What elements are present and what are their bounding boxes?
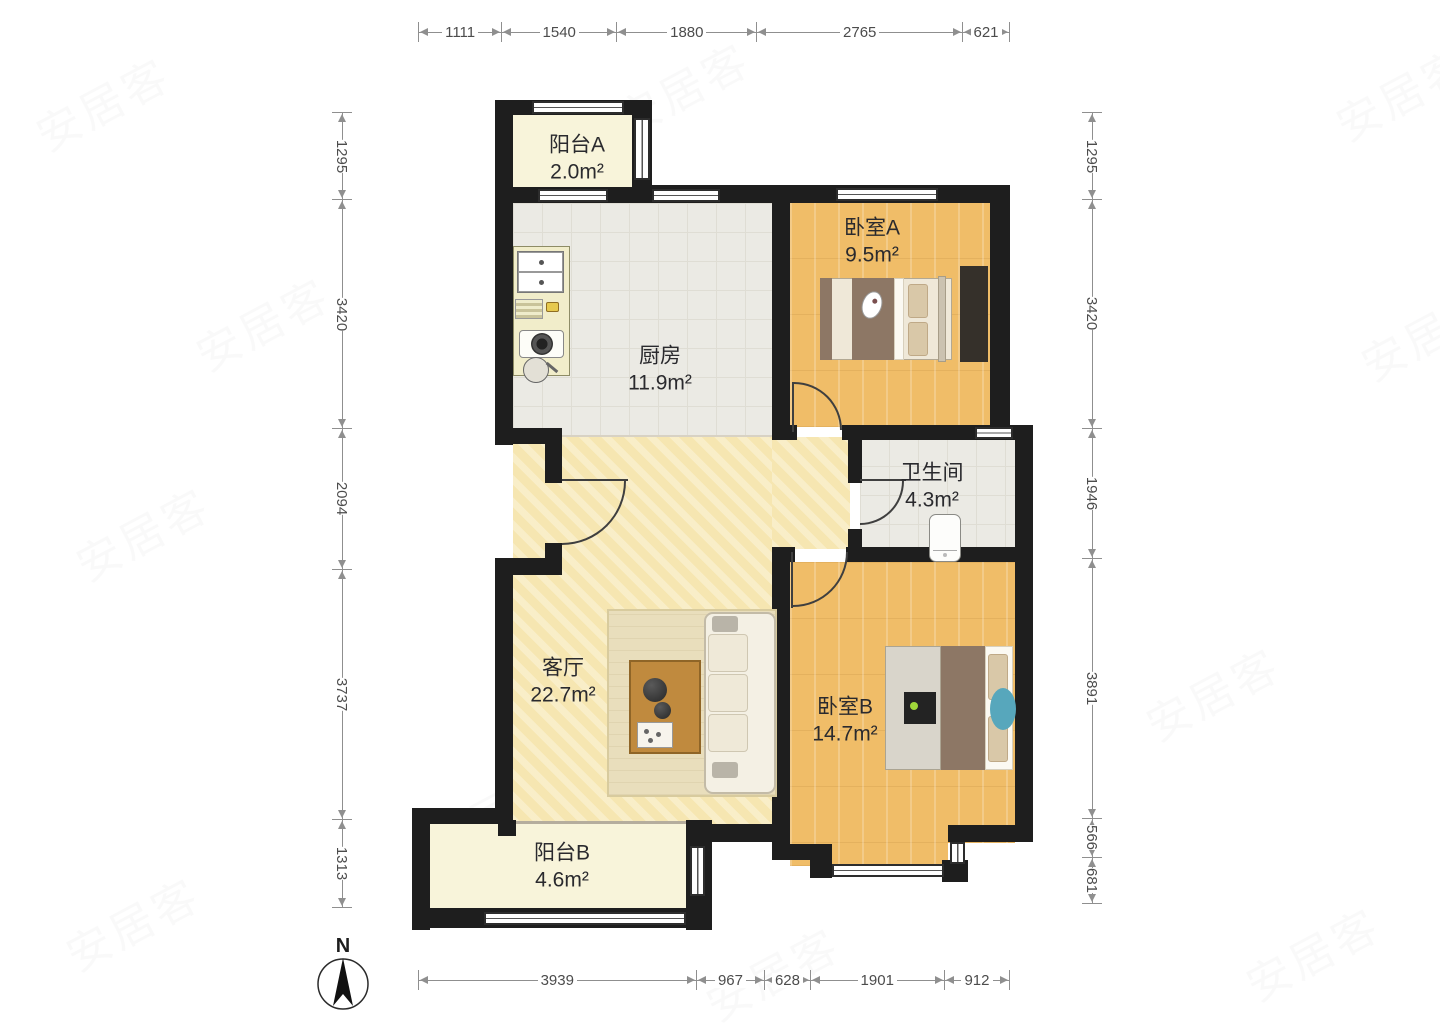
dimension-segment: 1946 bbox=[1082, 428, 1102, 558]
bed-a-pillow bbox=[908, 284, 928, 318]
watermark-text: 安居客 bbox=[53, 860, 210, 984]
dimension-segment: 681 bbox=[1082, 857, 1102, 904]
window bbox=[836, 188, 938, 201]
window bbox=[832, 864, 944, 877]
watermark-text: 安居客 bbox=[63, 470, 220, 594]
pan-icon bbox=[523, 357, 549, 383]
kitchen-living-seam bbox=[562, 435, 772, 437]
room-label-bedroom-a: 卧室A 9.5m² bbox=[844, 215, 900, 270]
room-label-living-room: 客厅 22.7m² bbox=[530, 655, 595, 710]
dimension-value: 1880 bbox=[667, 25, 706, 40]
table-decor-icon bbox=[643, 678, 667, 702]
watermark-text: 安居客 bbox=[183, 260, 340, 384]
bed-b-blanket bbox=[941, 646, 985, 770]
tv-icon bbox=[904, 692, 936, 724]
room-name: 卧室A bbox=[844, 217, 900, 240]
hallway-floor bbox=[772, 437, 850, 549]
wall-segment bbox=[848, 529, 862, 547]
room-label-balcony-b: 阳台B 4.6m² bbox=[534, 840, 590, 895]
room-label-bathroom: 卫生间 4.3m² bbox=[901, 460, 964, 515]
dimension-segment: 1295 bbox=[1082, 112, 1102, 199]
window bbox=[652, 189, 720, 202]
dimension-value: 1313 bbox=[332, 847, 353, 880]
watermark-text: 安居客 bbox=[693, 910, 850, 1024]
dimension-value: 967 bbox=[715, 973, 746, 988]
dimension-value: 3939 bbox=[538, 973, 577, 988]
wall-segment bbox=[848, 437, 862, 483]
dimension-value: 681 bbox=[1082, 868, 1103, 893]
watermark-text: 安居客 bbox=[1133, 630, 1290, 754]
sofa-pillow bbox=[712, 616, 738, 632]
wall-segment bbox=[1015, 425, 1033, 842]
dimension-line-left: 12953420209437371313 bbox=[332, 112, 352, 908]
dimension-segment: 628 bbox=[764, 970, 809, 990]
dimension-segment: 967 bbox=[696, 970, 765, 990]
dimension-value: 1295 bbox=[1082, 139, 1103, 172]
wall-segment bbox=[545, 428, 562, 483]
kitchen-sink-icon bbox=[517, 251, 564, 293]
stove-burner-icon bbox=[531, 333, 553, 355]
dimension-value: 2765 bbox=[840, 25, 879, 40]
dimension-segment: 3939 bbox=[418, 970, 696, 990]
dimension-value: 2094 bbox=[332, 482, 353, 515]
dimension-segment: 566 bbox=[1082, 818, 1102, 857]
dimension-value: 3891 bbox=[1082, 672, 1103, 705]
table-tray-icon bbox=[637, 722, 673, 748]
dimension-segment: 3737 bbox=[332, 569, 352, 819]
window bbox=[634, 118, 650, 180]
watermark-text: 安居客 bbox=[23, 40, 180, 164]
dimension-segment: 1901 bbox=[810, 970, 944, 990]
bed-a-pillow bbox=[908, 322, 928, 356]
room-label-bedroom-b: 卧室B 14.7m² bbox=[812, 694, 877, 749]
sofa-cushion bbox=[708, 714, 748, 752]
balcony-b-passage-line bbox=[516, 821, 686, 824]
watermark-text: 安居客 bbox=[1323, 30, 1440, 154]
dimension-value: 1295 bbox=[332, 139, 353, 172]
dimension-segment: 1313 bbox=[332, 819, 352, 908]
dimension-value: 3420 bbox=[1082, 297, 1103, 330]
dimension-line-bottom: 39399676281901912 bbox=[418, 970, 1010, 990]
bed-a-sheet bbox=[894, 278, 904, 360]
wall-segment bbox=[772, 185, 790, 437]
dimension-value: 1111 bbox=[442, 25, 478, 40]
room-area: 2.0m² bbox=[549, 159, 605, 186]
room-area: 4.3m² bbox=[901, 487, 964, 514]
dimension-value: 3737 bbox=[332, 677, 353, 710]
dimension-value: 1946 bbox=[1082, 477, 1103, 510]
dimension-segment: 1295 bbox=[332, 112, 352, 199]
bed-b-stool-icon bbox=[990, 688, 1016, 730]
bedroom-a-wardrobe bbox=[960, 266, 988, 362]
room-name: 厨房 bbox=[639, 345, 681, 368]
dimension-segment: 2765 bbox=[756, 22, 962, 42]
room-name: 卫生间 bbox=[901, 462, 964, 485]
room-name: 卧室B bbox=[817, 696, 873, 719]
counter-item-icon bbox=[546, 302, 559, 312]
toilet-icon bbox=[929, 514, 961, 562]
wall-segment bbox=[498, 820, 516, 836]
wall-segment bbox=[810, 848, 832, 878]
dimension-segment: 3891 bbox=[1082, 558, 1102, 818]
sofa-cushion bbox=[708, 674, 748, 712]
table-decor-icon bbox=[654, 702, 671, 719]
dimension-line-top: 1111154018802765621 bbox=[418, 22, 1010, 42]
dimension-segment: 1540 bbox=[501, 22, 616, 42]
watermark-text: 安居客 bbox=[1233, 890, 1390, 1014]
watermark-text: 安居客 bbox=[1348, 270, 1440, 394]
room-area: 9.5m² bbox=[844, 242, 900, 269]
sofa-pillow bbox=[712, 762, 738, 778]
room-name: 客厅 bbox=[542, 657, 584, 680]
room-label-kitchen: 厨房 11.9m² bbox=[628, 343, 692, 398]
floor-plan-canvas: 安居客安居客安居客安居客安居客安居客安居客安居客安居客安居客安居客安居客安居客 … bbox=[0, 0, 1440, 1024]
bed-a-headboard bbox=[938, 276, 946, 362]
dimension-segment: 3420 bbox=[332, 199, 352, 428]
dimension-segment: 621 bbox=[962, 22, 1010, 42]
room-area: 22.7m² bbox=[530, 682, 595, 709]
dimension-value: 621 bbox=[971, 25, 1002, 40]
window bbox=[975, 427, 1013, 439]
bed-a-footboard bbox=[820, 278, 832, 360]
window bbox=[538, 189, 608, 202]
room-name: 阳台A bbox=[549, 134, 605, 157]
wall-segment bbox=[495, 100, 513, 445]
room-area: 11.9m² bbox=[628, 370, 692, 397]
wall-segment bbox=[990, 185, 1010, 440]
dimension-segment: 1111 bbox=[418, 22, 501, 42]
dish-rack-icon bbox=[515, 299, 543, 319]
wall-segment bbox=[495, 558, 513, 824]
sink-basin bbox=[518, 272, 563, 292]
dimension-segment: 3420 bbox=[1082, 199, 1102, 428]
dimension-value: 1901 bbox=[858, 973, 897, 988]
wall-segment bbox=[948, 825, 1033, 842]
window bbox=[532, 101, 624, 114]
window bbox=[690, 846, 705, 896]
dimension-segment: 1880 bbox=[616, 22, 756, 42]
dimension-line-right: 1295342019463891566681 bbox=[1082, 112, 1102, 904]
dimension-value: 912 bbox=[961, 973, 992, 988]
dimension-segment: 912 bbox=[944, 970, 1010, 990]
dimension-value: 1540 bbox=[540, 25, 579, 40]
room-area: 4.6m² bbox=[534, 867, 590, 894]
room-name: 阳台B bbox=[534, 842, 590, 865]
window bbox=[484, 912, 686, 925]
dimension-value: 628 bbox=[772, 973, 803, 988]
north-label: N bbox=[336, 935, 350, 957]
sink-basin bbox=[518, 252, 563, 272]
dimension-value: 566 bbox=[1082, 825, 1103, 850]
room-label-balcony-a: 阳台A 2.0m² bbox=[549, 132, 605, 187]
sofa-cushion bbox=[708, 634, 748, 672]
dimension-value: 3420 bbox=[332, 297, 353, 330]
room-area: 14.7m² bbox=[812, 721, 877, 748]
window bbox=[950, 842, 965, 864]
north-arrow-icon: N bbox=[312, 934, 374, 1019]
dimension-segment: 2094 bbox=[332, 428, 352, 569]
